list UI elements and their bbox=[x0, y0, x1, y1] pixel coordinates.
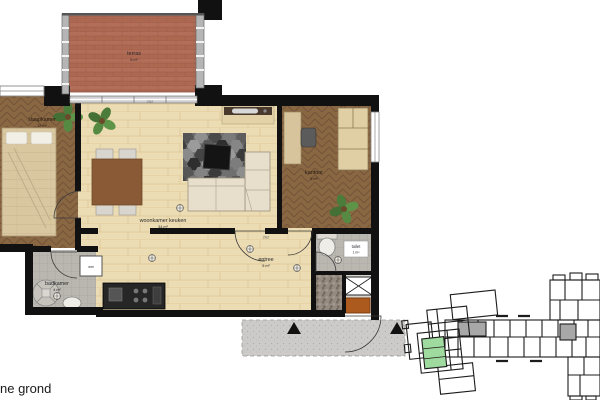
kitchen-counter bbox=[222, 106, 274, 124]
room-label-toilet: toilet bbox=[352, 244, 362, 249]
minimap-highlighted-unit bbox=[422, 337, 447, 369]
room-area-toilet: 1 m² bbox=[353, 251, 361, 255]
room-area-terras: 6 m² bbox=[130, 58, 138, 62]
room-area-woonkamer: 34 m² bbox=[158, 225, 168, 229]
floorplan-page: terras 6 m² slaapkamer 12 m² woonkamer k… bbox=[0, 0, 600, 400]
room-label-badkamer: badkamer bbox=[45, 281, 69, 287]
room-area-kantoor: 5 m² bbox=[310, 177, 318, 181]
building-overview-minimap bbox=[400, 273, 600, 400]
room-label-woonkamer: woonkamer keuken bbox=[139, 218, 187, 224]
minimap-left-cluster bbox=[400, 290, 506, 397]
coffee-table bbox=[203, 144, 231, 170]
doormat bbox=[345, 298, 370, 313]
sliding-door bbox=[70, 96, 197, 103]
washing-machine-position bbox=[345, 277, 372, 295]
room-area-entree: 5 m² bbox=[262, 264, 270, 268]
chair bbox=[119, 149, 136, 160]
room-label-terras: terras bbox=[127, 51, 141, 57]
dining-table bbox=[92, 159, 142, 205]
kitchen-block bbox=[103, 283, 165, 309]
storage-floor bbox=[313, 274, 342, 313]
chair bbox=[96, 204, 113, 215]
minimap-core bbox=[458, 322, 486, 336]
lamp-icon bbox=[54, 293, 61, 300]
dimension-top: 252 bbox=[147, 99, 154, 104]
room-label-slaapkamer: slaapkamer bbox=[28, 117, 56, 123]
desk-chair bbox=[301, 128, 316, 147]
room-label-entree: entree bbox=[258, 257, 273, 263]
floorplan-drawing: terras 6 m² slaapkamer 12 m² woonkamer k… bbox=[0, 0, 600, 400]
lamp-icon bbox=[247, 246, 254, 253]
lamp-icon bbox=[294, 265, 301, 272]
room-area-slaapkamer: 12 m² bbox=[37, 124, 47, 128]
lamp-icon bbox=[177, 205, 184, 212]
washer-label: wm bbox=[88, 265, 94, 269]
pillow bbox=[31, 132, 52, 144]
dimension-entree: 262 bbox=[263, 235, 270, 240]
sidewalk bbox=[242, 320, 405, 356]
office-shelves bbox=[338, 108, 368, 170]
desk bbox=[284, 112, 301, 164]
pillow bbox=[6, 132, 27, 144]
room-area-badkamer: 4 m² bbox=[53, 288, 61, 292]
lamp-icon bbox=[335, 257, 342, 264]
chair bbox=[119, 204, 136, 215]
chair bbox=[96, 149, 113, 160]
floor-caption: ne grond bbox=[0, 381, 51, 396]
room-label-kantoor: kantoor bbox=[305, 170, 323, 176]
lamp-icon bbox=[149, 255, 156, 262]
minimap-core bbox=[560, 324, 576, 340]
